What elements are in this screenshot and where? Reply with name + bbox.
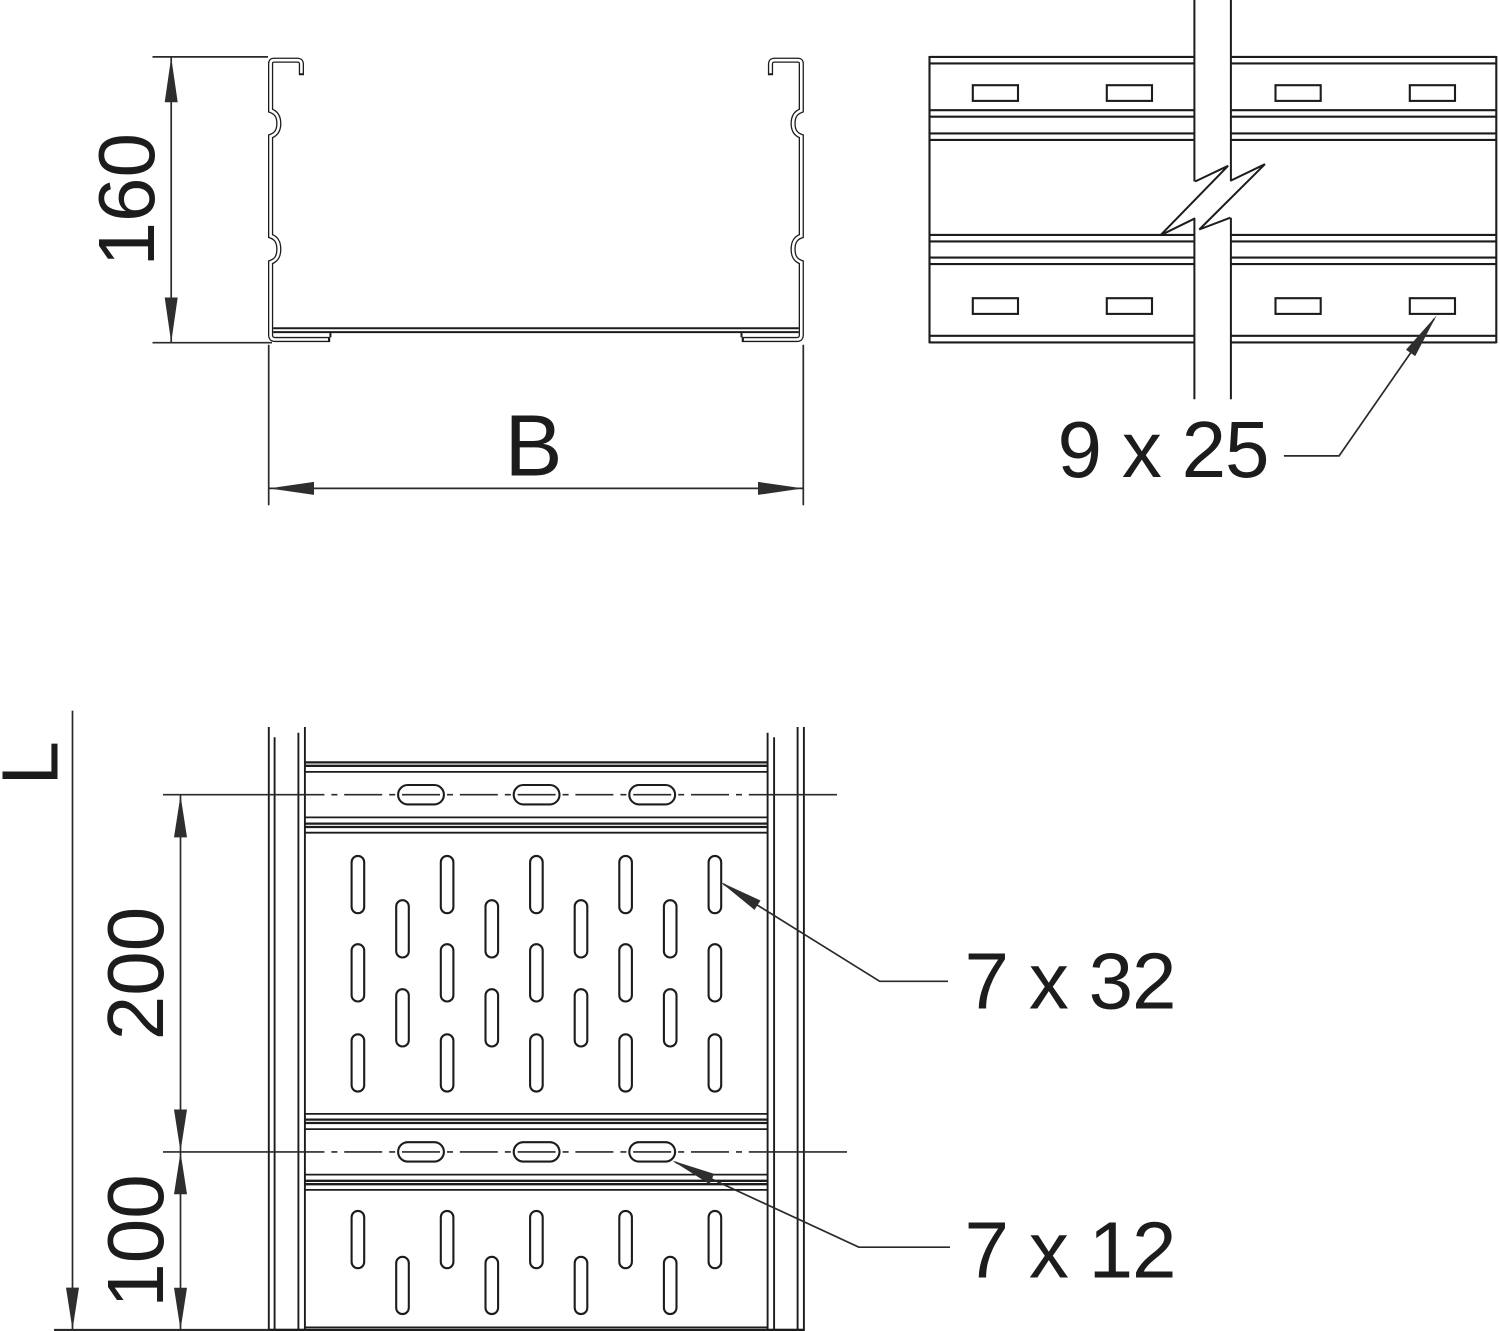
svg-text:200: 200: [91, 907, 180, 1040]
svg-text:9 x 25: 9 x 25: [1058, 405, 1269, 494]
svg-text:100: 100: [91, 1174, 180, 1307]
svg-text:B: B: [504, 398, 562, 495]
svg-text:7 x 12: 7 x 12: [965, 1206, 1176, 1295]
svg-text:L: L: [0, 741, 75, 786]
svg-text:160: 160: [82, 133, 171, 266]
svg-text:7 x 32: 7 x 32: [965, 937, 1176, 1026]
